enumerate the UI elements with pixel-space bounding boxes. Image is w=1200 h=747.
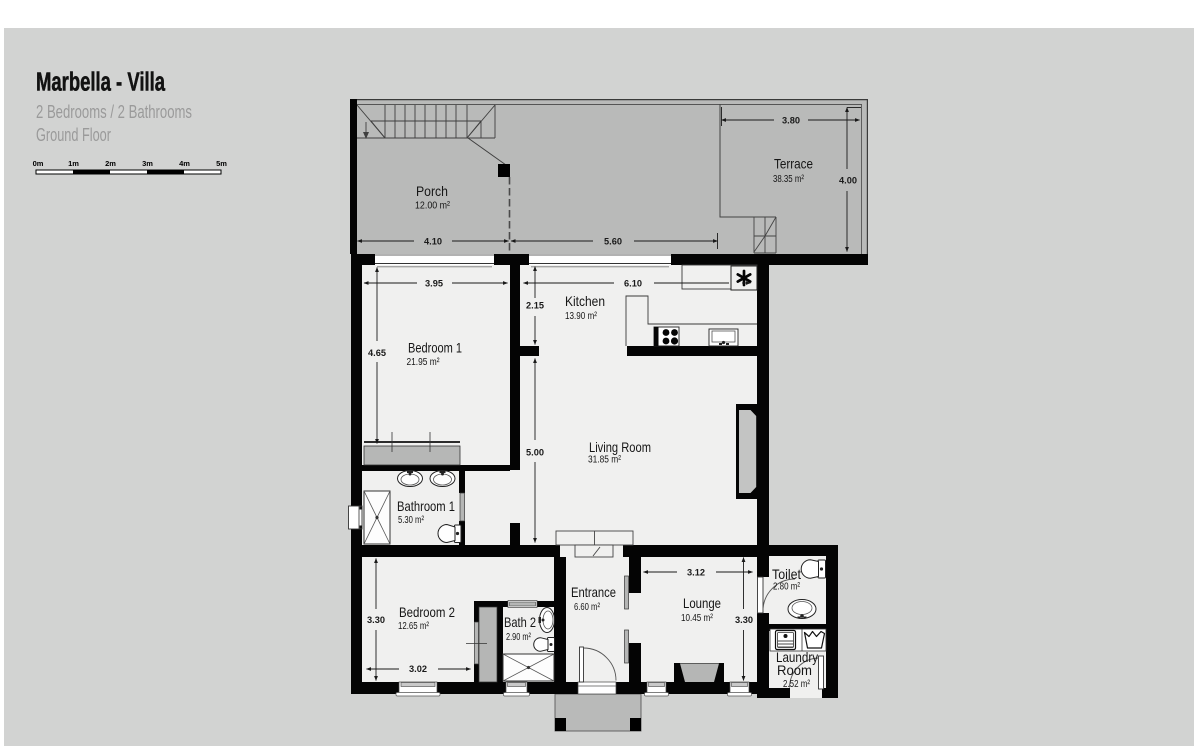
svg-text:4m: 4m (179, 159, 190, 168)
svg-text:3.30: 3.30 (735, 615, 753, 626)
svg-text:5.60: 5.60 (604, 237, 622, 248)
svg-text:1m: 1m (68, 159, 79, 168)
svg-text:Ground Floor: Ground Floor (36, 125, 111, 145)
svg-text:5.30 m²: 5.30 m² (398, 515, 425, 526)
svg-text:Living Room: Living Room (589, 439, 651, 455)
svg-text:2.90 m²: 2.90 m² (506, 632, 531, 643)
svg-text:3.02: 3.02 (409, 664, 427, 675)
svg-text:3.95: 3.95 (425, 279, 444, 290)
svg-text:10.45 m²: 10.45 m² (681, 613, 714, 624)
svg-text:Toilet: Toilet (772, 566, 801, 582)
svg-text:Lounge: Lounge (683, 595, 721, 611)
svg-text:2.80 m²: 2.80 m² (773, 582, 801, 593)
svg-text:Bedroom 1: Bedroom 1 (408, 340, 462, 356)
svg-text:Bathroom 1: Bathroom 1 (397, 498, 455, 514)
svg-text:3.12: 3.12 (687, 568, 705, 579)
svg-text:38.35 m²: 38.35 m² (773, 174, 805, 185)
svg-text:2m: 2m (105, 159, 116, 168)
svg-text:0m: 0m (33, 159, 44, 168)
svg-text:2.15: 2.15 (526, 301, 545, 312)
svg-text:12.65 m²: 12.65 m² (398, 621, 430, 632)
svg-text:4.00: 4.00 (839, 176, 857, 187)
svg-text:4.65: 4.65 (368, 348, 387, 359)
svg-text:21.95 m²: 21.95 m² (407, 357, 441, 368)
svg-text:5m: 5m (216, 159, 227, 168)
svg-text:Porch: Porch (416, 183, 448, 199)
svg-text:Kitchen: Kitchen (565, 293, 605, 309)
svg-text:Bath 2: Bath 2 (504, 614, 536, 630)
svg-text:6.10: 6.10 (624, 279, 642, 290)
svg-text:2 Bedrooms / 2 Bathrooms: 2 Bedrooms / 2 Bathrooms (36, 102, 192, 122)
svg-text:6.60 m²: 6.60 m² (574, 602, 601, 613)
svg-text:Room: Room (777, 662, 812, 678)
svg-text:Marbella - Villa: Marbella - Villa (36, 69, 166, 97)
svg-text:3.30: 3.30 (367, 615, 385, 626)
svg-text:2.52 m²: 2.52 m² (783, 679, 811, 690)
svg-text:13.90 m²: 13.90 m² (565, 311, 598, 322)
svg-text:Entrance: Entrance (571, 584, 616, 600)
svg-text:Bedroom 2: Bedroom 2 (399, 604, 455, 620)
svg-text:Terrace: Terrace (774, 156, 813, 172)
svg-text:4.10: 4.10 (424, 237, 442, 248)
svg-text:3.80: 3.80 (782, 116, 800, 127)
svg-text:31.85 m²: 31.85 m² (588, 455, 622, 466)
svg-text:3m: 3m (142, 159, 153, 168)
svg-text:12.00 m²: 12.00 m² (415, 201, 451, 212)
svg-text:5.00: 5.00 (526, 448, 544, 459)
